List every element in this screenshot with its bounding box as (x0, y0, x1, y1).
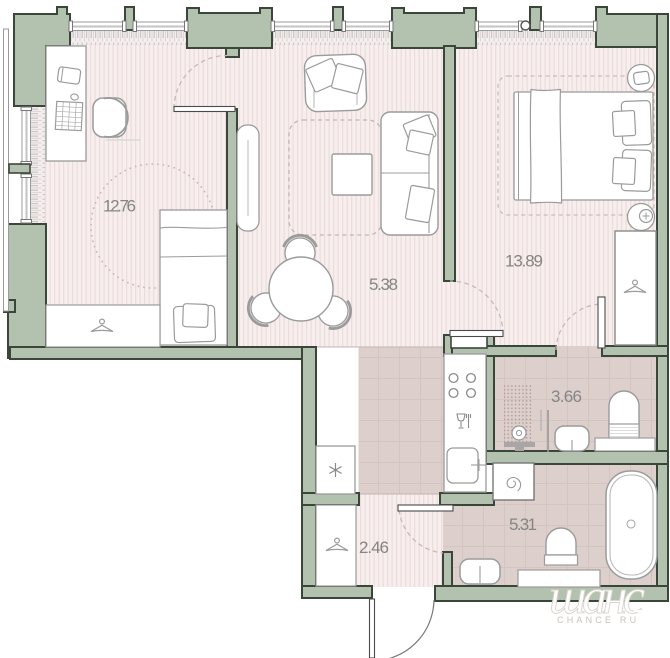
svg-text:13.89: 13.89 (505, 252, 543, 271)
svg-text:5.38: 5.38 (369, 275, 398, 294)
svg-text:12.76: 12.76 (103, 197, 136, 216)
svg-text:2.46: 2.46 (359, 538, 389, 557)
svg-text:5.31: 5.31 (509, 515, 537, 534)
svg-text:CHANCE RU: CHANCE RU (557, 615, 639, 625)
svg-text:3.66: 3.66 (551, 387, 582, 406)
